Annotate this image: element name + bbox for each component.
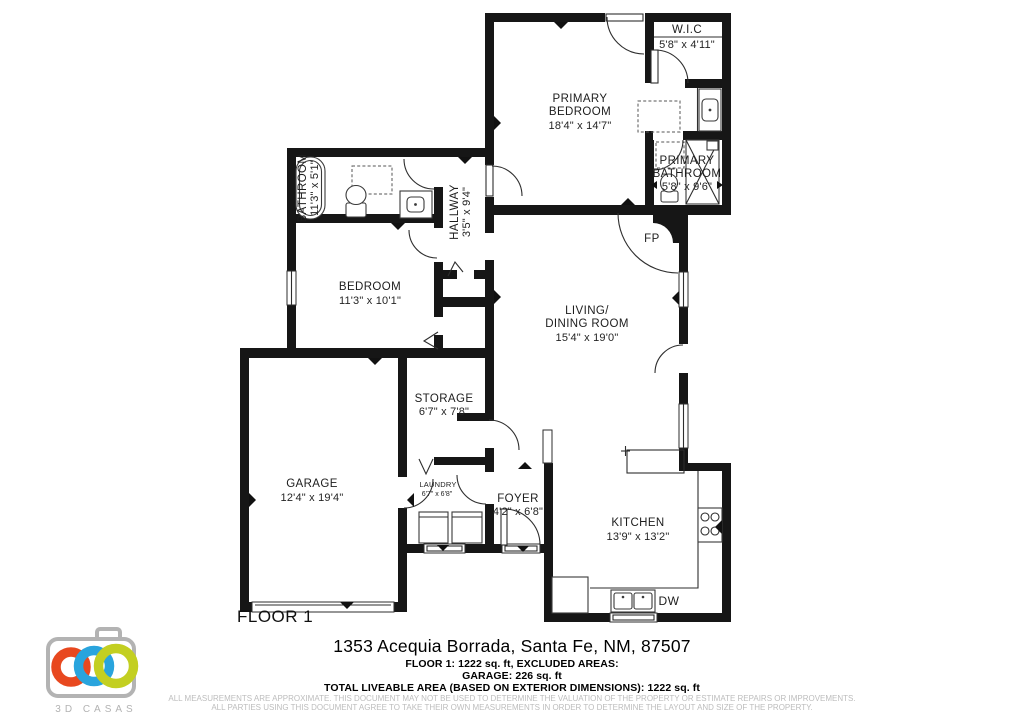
room-dims-bathroom: 11'3" x 5'1"	[309, 160, 321, 216]
dishwasher-label: DW	[659, 594, 680, 608]
room-dims-primary-bathroom: 5'8" x 9'6"	[662, 181, 712, 193]
room-label-primary-bedroom-2: BEDROOM	[549, 106, 611, 118]
kitchen-sink-icon	[611, 590, 655, 612]
primary-bedroom-furniture-icon	[638, 101, 680, 132]
living-window-lower-icon	[679, 404, 688, 448]
room-label-hallway: HALLWAY	[449, 184, 461, 240]
floor-label: FLOOR 1	[237, 607, 313, 626]
room-label-wic: W.I.C	[672, 24, 702, 36]
room-label-kitchen: KITCHEN	[611, 517, 664, 529]
room-dims-storage: 6'7" x 7'8"	[419, 406, 469, 418]
room-label-foyer: FOYER	[497, 493, 539, 505]
bedroom-door-icon	[409, 230, 437, 258]
room-label-bedroom: BEDROOM	[339, 281, 401, 293]
floorplan-drawing: W.I.C 5'8" x 4'11" PRIMARY BEDROOM 18'4"…	[0, 0, 1024, 724]
room-label-laundry: LAUNDRY	[419, 480, 456, 489]
living-patio-door-icon	[655, 345, 683, 373]
room-label-living-1: LIVING/	[565, 305, 609, 317]
fireplace-label: FP	[644, 233, 660, 245]
floorplan-page: W.I.C 5'8" x 4'11" PRIMARY BEDROOM 18'4"…	[0, 0, 1024, 724]
room-dims-hallway: 3'5" x 9'4"	[461, 187, 473, 237]
room-dims-garage: 12'4" x 19'4"	[281, 492, 344, 504]
vanity-nook-icon	[698, 88, 722, 131]
room-dims-primary-bedroom: 18'4" x 14'7"	[549, 120, 612, 132]
laundry-foyer-door-icon	[457, 475, 486, 504]
room-label-primary-bedroom-1: PRIMARY	[553, 93, 608, 105]
room-label-living-2: DINING ROOM	[545, 318, 629, 330]
camera-logo-icon	[48, 629, 134, 696]
room-label-storage: STORAGE	[415, 393, 474, 405]
brand-name: 3D CASAS	[55, 704, 136, 715]
room-dims-foyer: 4'2" x 6'8"	[493, 506, 543, 518]
bedroom-window-icon	[287, 271, 296, 305]
coat-closet-door-icon	[489, 420, 519, 450]
room-dims-wic: 5'8" x 4'11"	[659, 39, 715, 51]
storage-laundry-door-icon	[419, 459, 433, 474]
brand-logo: 3D CASAS	[38, 624, 154, 716]
room-dims-laundry: 6'7" x 6'8"	[422, 491, 453, 498]
living-window-upper-icon	[679, 272, 688, 307]
bathroom-door-icon	[404, 159, 434, 189]
primary-bedroom-patio-door-icon	[605, 13, 645, 54]
primary-bedroom-door-icon	[486, 165, 522, 196]
washer-icon	[419, 512, 448, 543]
room-label-primary-bathroom-1: PRIMARY	[660, 155, 715, 167]
bathroom-toilet-icon	[346, 186, 366, 218]
room-dims-bedroom: 11'3" x 10'1"	[339, 295, 401, 307]
room-dims-living: 15'4" x 19'0"	[556, 332, 619, 344]
bathroom-sink-icon	[400, 191, 432, 218]
room-label-bathroom: BATHROOM	[297, 154, 309, 223]
foyer-opening-post-icon	[543, 430, 552, 463]
kitchen-window-icon	[610, 613, 657, 622]
room-label-garage: GARAGE	[286, 478, 338, 490]
room-label-primary-bathroom-2: BATHROOM	[653, 168, 722, 180]
fridge-icon	[552, 577, 588, 613]
wic-door-icon	[651, 50, 688, 83]
room-dims-kitchen: 13'9" x 13'2"	[607, 531, 670, 543]
dryer-icon	[452, 512, 482, 543]
